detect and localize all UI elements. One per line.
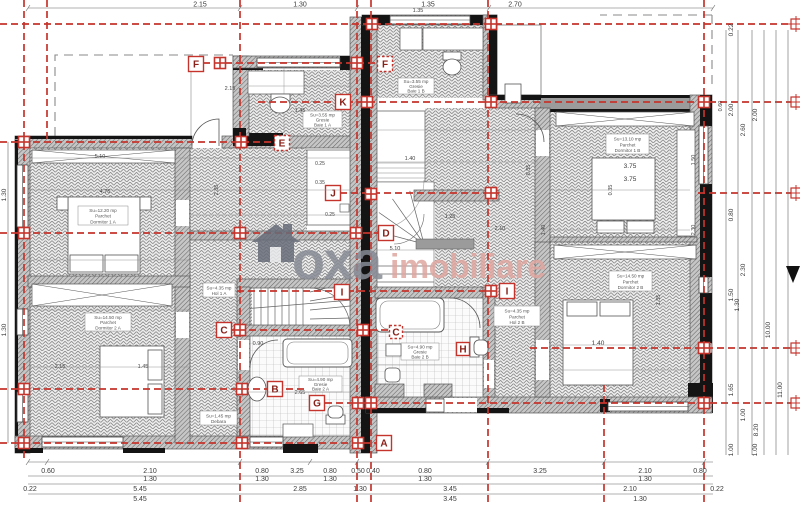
svg-text:0.80: 0.80 bbox=[418, 468, 432, 475]
svg-text:G: G bbox=[313, 398, 321, 409]
svg-text:2.10: 2.10 bbox=[495, 226, 506, 232]
svg-text:imobiliare: imobiliare bbox=[390, 248, 546, 286]
svg-text:1.30: 1.30 bbox=[638, 476, 652, 483]
svg-text:Dormitor 1 B: Dormitor 1 B bbox=[615, 148, 641, 153]
svg-text:1.30: 1.30 bbox=[1, 323, 8, 336]
svg-text:1.30: 1.30 bbox=[143, 476, 157, 483]
svg-text:5.45: 5.45 bbox=[133, 486, 147, 493]
svg-text:5.10: 5.10 bbox=[95, 154, 106, 160]
svg-text:1.40: 1.40 bbox=[592, 340, 605, 347]
svg-text:Debara: Debara bbox=[211, 419, 227, 424]
svg-text:Su=14.50 mp: Su=14.50 mp bbox=[94, 315, 122, 320]
svg-text:3.45: 3.45 bbox=[443, 496, 457, 503]
svg-text:2.85: 2.85 bbox=[293, 486, 307, 493]
svg-text:1.35: 1.35 bbox=[413, 8, 424, 14]
svg-text:0.22: 0.22 bbox=[710, 486, 724, 493]
svg-text:2.10: 2.10 bbox=[143, 468, 157, 475]
svg-text:Su=12.20 mp: Su=12.20 mp bbox=[89, 208, 117, 213]
svg-text:0.80: 0.80 bbox=[255, 468, 269, 475]
svg-text:1.40: 1.40 bbox=[541, 225, 547, 236]
svg-text:0.80: 0.80 bbox=[323, 468, 337, 475]
svg-text:Dormitor 2 B: Dormitor 2 B bbox=[618, 285, 644, 290]
svg-text:3.75: 3.75 bbox=[624, 176, 637, 183]
svg-text:0.50: 0.50 bbox=[351, 468, 365, 475]
svg-text:2.30: 2.30 bbox=[740, 263, 747, 276]
svg-text:1.00: 1.00 bbox=[728, 443, 735, 456]
svg-text:1.30: 1.30 bbox=[734, 298, 741, 311]
svg-text:11.00: 11.00 bbox=[777, 382, 784, 398]
svg-text:Parchet: Parchet bbox=[620, 142, 637, 147]
svg-text:1.45: 1.45 bbox=[295, 108, 306, 114]
svg-text:2.70: 2.70 bbox=[508, 2, 522, 9]
svg-text:H: H bbox=[459, 344, 466, 355]
svg-text:Su=4.35 mp: Su=4.35 mp bbox=[505, 308, 530, 313]
svg-text:2.15: 2.15 bbox=[193, 2, 207, 9]
svg-text:Su=1.45 mp: Su=1.45 mp bbox=[206, 413, 231, 418]
svg-text:Su=14.50 mp: Su=14.50 mp bbox=[617, 273, 645, 278]
svg-text:1.30: 1.30 bbox=[293, 2, 307, 9]
svg-text:0.35: 0.35 bbox=[526, 165, 532, 176]
svg-text:Su=13.10 mp: Su=13.10 mp bbox=[614, 136, 642, 141]
svg-text:0.80: 0.80 bbox=[728, 208, 735, 221]
svg-text:C: C bbox=[392, 327, 399, 338]
svg-text:Parchet: Parchet bbox=[623, 279, 640, 284]
svg-text:D: D bbox=[382, 228, 389, 239]
svg-text:1.35: 1.35 bbox=[656, 295, 662, 306]
svg-text:0.22: 0.22 bbox=[728, 23, 735, 36]
svg-text:0.90: 0.90 bbox=[253, 341, 264, 347]
svg-text:F: F bbox=[382, 59, 388, 70]
svg-text:10.00: 10.00 bbox=[765, 321, 772, 338]
svg-text:Su=4.35 mp: Su=4.35 mp bbox=[207, 285, 232, 290]
svg-text:C: C bbox=[220, 325, 227, 336]
svg-text:5.45: 5.45 bbox=[133, 496, 147, 503]
svg-text:2.10: 2.10 bbox=[638, 468, 652, 475]
svg-text:3.25: 3.25 bbox=[533, 468, 547, 475]
svg-text:1.30: 1.30 bbox=[633, 496, 647, 503]
svg-text:0.40: 0.40 bbox=[366, 468, 380, 475]
svg-text:1.30: 1.30 bbox=[1, 188, 8, 201]
svg-text:2.60: 2.60 bbox=[740, 123, 747, 136]
svg-text:2.00: 2.00 bbox=[728, 103, 735, 116]
svg-text:2.00: 2.00 bbox=[752, 108, 759, 121]
svg-text:8.20: 8.20 bbox=[753, 423, 760, 436]
svg-text:B: B bbox=[271, 384, 278, 395]
svg-text:1.40: 1.40 bbox=[405, 156, 416, 162]
svg-text:Parchet: Parchet bbox=[95, 214, 112, 219]
svg-text:2.65: 2.65 bbox=[295, 390, 306, 396]
svg-text:Parchet: Parchet bbox=[509, 314, 526, 319]
svg-text:1.30: 1.30 bbox=[255, 476, 269, 483]
svg-text:0.60: 0.60 bbox=[718, 101, 724, 112]
svg-text:3.75: 3.75 bbox=[624, 163, 637, 170]
svg-text:Baie 2 B: Baie 2 B bbox=[411, 355, 428, 360]
svg-text:K: K bbox=[339, 97, 347, 108]
svg-text:3.45: 3.45 bbox=[443, 486, 457, 493]
svg-text:Baie 1 B: Baie 1 B bbox=[407, 89, 424, 94]
svg-text:I: I bbox=[506, 286, 509, 297]
svg-text:F: F bbox=[193, 59, 199, 70]
svg-text:Hol 2 B: Hol 2 B bbox=[509, 320, 524, 325]
svg-text:0.80: 0.80 bbox=[693, 468, 707, 475]
svg-text:3.25: 3.25 bbox=[290, 468, 304, 475]
svg-text:1.30: 1.30 bbox=[418, 476, 432, 483]
svg-text:Hol 1 A: Hol 1 A bbox=[212, 291, 228, 296]
svg-text:E: E bbox=[279, 138, 286, 149]
svg-text:1.30: 1.30 bbox=[323, 476, 337, 483]
svg-text:2.15: 2.15 bbox=[225, 86, 236, 92]
svg-text:0.22: 0.22 bbox=[23, 486, 37, 493]
svg-text:1.50: 1.50 bbox=[691, 155, 697, 166]
svg-text:Dormitor 2 A: Dormitor 2 A bbox=[95, 325, 121, 330]
svg-text:2.10: 2.10 bbox=[623, 486, 637, 493]
svg-text:1.00: 1.00 bbox=[740, 408, 747, 421]
svg-text:1.00: 1.00 bbox=[752, 443, 759, 456]
svg-text:Baie 1 A: Baie 1 A bbox=[314, 123, 332, 128]
svg-text:1.25: 1.25 bbox=[445, 214, 456, 220]
svg-text:0.35: 0.35 bbox=[315, 180, 325, 186]
svg-text:1.30: 1.30 bbox=[353, 486, 367, 493]
svg-text:A: A bbox=[380, 438, 387, 449]
svg-text:Parchet: Parchet bbox=[100, 320, 117, 325]
svg-text:0.60: 0.60 bbox=[41, 468, 55, 475]
svg-text:1.65: 1.65 bbox=[728, 383, 735, 396]
svg-text:Dormitor 1 A: Dormitor 1 A bbox=[90, 219, 116, 224]
svg-text:oxa: oxa bbox=[292, 231, 383, 291]
svg-text:2.30: 2.30 bbox=[691, 225, 697, 236]
svg-text:0.25: 0.25 bbox=[315, 161, 325, 167]
svg-text:Baie 2 A: Baie 2 A bbox=[312, 387, 330, 392]
